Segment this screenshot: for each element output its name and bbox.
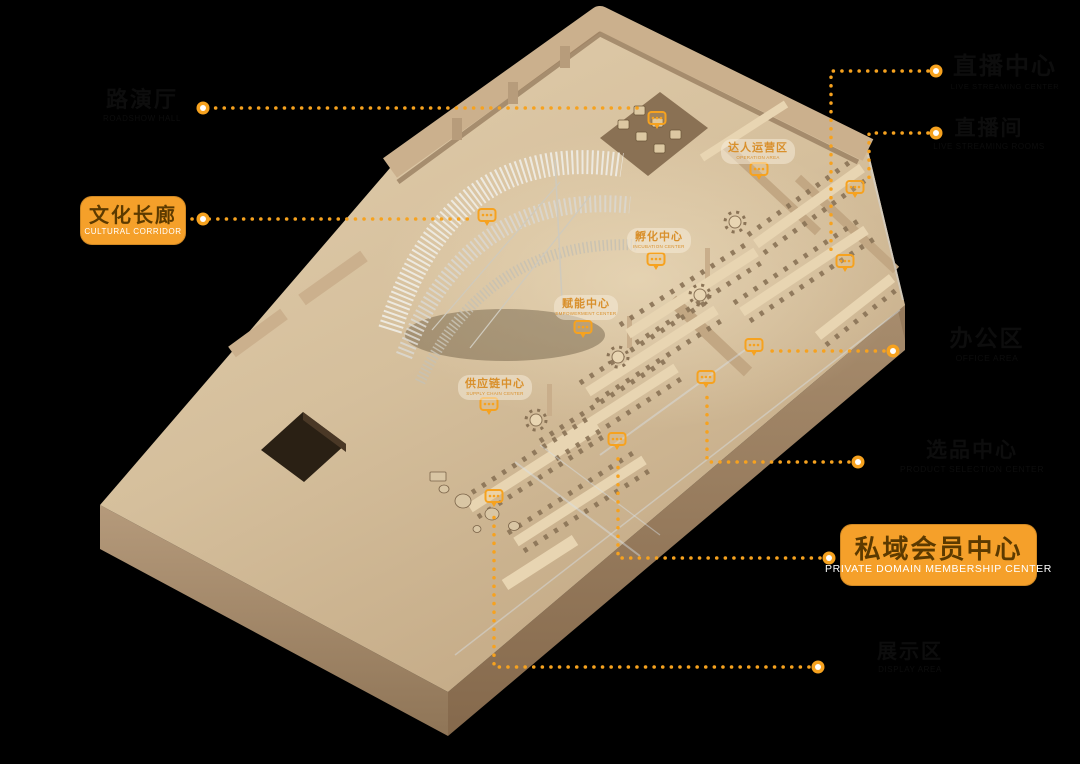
label-roadshow-hall: 路演厅 ROADSHOW HALL: [72, 86, 212, 124]
tag-en-text: SUPPLY CHAIN CENTER: [466, 392, 523, 397]
location-pin-icon: [746, 339, 763, 356]
label-display-area: 展示区 DISPLAY AREA: [830, 640, 990, 675]
leader-live-center: [831, 71, 928, 256]
label-zh-text: 办公区: [898, 324, 1076, 353]
tag-en-text: INCUBATION CENTER: [633, 245, 685, 250]
endpoint-dot: [852, 456, 865, 469]
label-zh-text: 展示区: [830, 640, 990, 665]
endpoint-dot: [197, 213, 210, 226]
label-en-text: LIVE STREAMING ROOMS: [900, 142, 1078, 152]
label-cultural-corridor: 文化长廊 CULTURAL CORRIDOR: [80, 196, 186, 245]
floor-plan-diagram: 文化长廊 CULTURAL CORRIDOR 私域会员中心 PRIVATE DO…: [0, 0, 1080, 764]
label-en-text: PRIVATE DOMAIN MEMBERSHIP CENTER: [825, 564, 1052, 575]
location-pin-icon: [648, 253, 665, 270]
label-live-streaming-center: 直播中心 LIVE STREAMING CENTER: [940, 52, 1070, 92]
location-pin-icon: [751, 163, 768, 180]
label-zh-text: 直播中心: [940, 52, 1070, 82]
leader-membership-center: [618, 452, 820, 558]
location-pin-icon: [609, 433, 626, 450]
label-office-area: 办公区 OFFICE AREA: [898, 324, 1076, 364]
location-pin-icon: [698, 371, 715, 388]
label-en-text: CULTURAL CORRIDOR: [84, 228, 181, 236]
location-pin-icon: [575, 321, 592, 338]
location-pin-icon: [481, 398, 498, 415]
floor-tag-operation-area: 达人运营区 OPERATION AREA: [721, 139, 795, 164]
tag-zh-text: 供应链中心: [465, 378, 525, 391]
tag-en-text: EMPOWERMENT CENTER: [555, 312, 616, 317]
tag-zh-text: 赋能中心: [562, 298, 610, 311]
floor-tag-empowerment-center: 赋能中心 EMPOWERMENT CENTER: [554, 295, 618, 320]
label-en-text: ROADSHOW HALL: [72, 114, 212, 124]
leader-lines: [192, 71, 928, 667]
leader-display-area: [494, 509, 809, 667]
label-en-text: PRODUCT SELECTION CENTER: [872, 464, 1072, 475]
tag-en-text: OPERATION AREA: [736, 156, 779, 161]
floor-tag-incubation-center: 孵化中心 INCUBATION CENTER: [627, 228, 691, 253]
location-pin-icon: [837, 255, 854, 272]
label-product-selection-center: 选品中心 PRODUCT SELECTION CENTER: [872, 438, 1072, 475]
label-zh-text: 直播间: [900, 116, 1078, 142]
tag-zh-text: 达人运营区: [728, 142, 788, 155]
tag-zh-text: 孵化中心: [635, 231, 683, 244]
label-live-streaming-rooms: 直播间 LIVE STREAMING ROOMS: [900, 116, 1078, 153]
location-pin-icon: [847, 181, 864, 198]
floor-tag-supply-chain-center: 供应链中心 SUPPLY CHAIN CENTER: [458, 375, 532, 400]
label-private-domain-membership-center: 私域会员中心 PRIVATE DOMAIN MEMBERSHIP CENTER: [840, 524, 1037, 586]
label-en-text: DISPLAY AREA: [830, 665, 990, 675]
label-zh-text: 私域会员中心: [854, 536, 1022, 562]
label-en-text: LIVE STREAMING CENTER: [940, 82, 1070, 92]
location-pin-icon: [486, 490, 503, 507]
label-zh-text: 文化长廊: [89, 206, 177, 226]
location-pins: [479, 112, 864, 507]
endpoint-dot: [812, 661, 825, 674]
location-pin-icon: [479, 209, 496, 226]
leader-selection-center: [707, 390, 849, 462]
label-en-text: OFFICE AREA: [898, 353, 1076, 364]
location-pin-icon: [649, 112, 666, 129]
label-zh-text: 选品中心: [872, 438, 1072, 464]
label-zh-text: 路演厅: [72, 86, 212, 114]
